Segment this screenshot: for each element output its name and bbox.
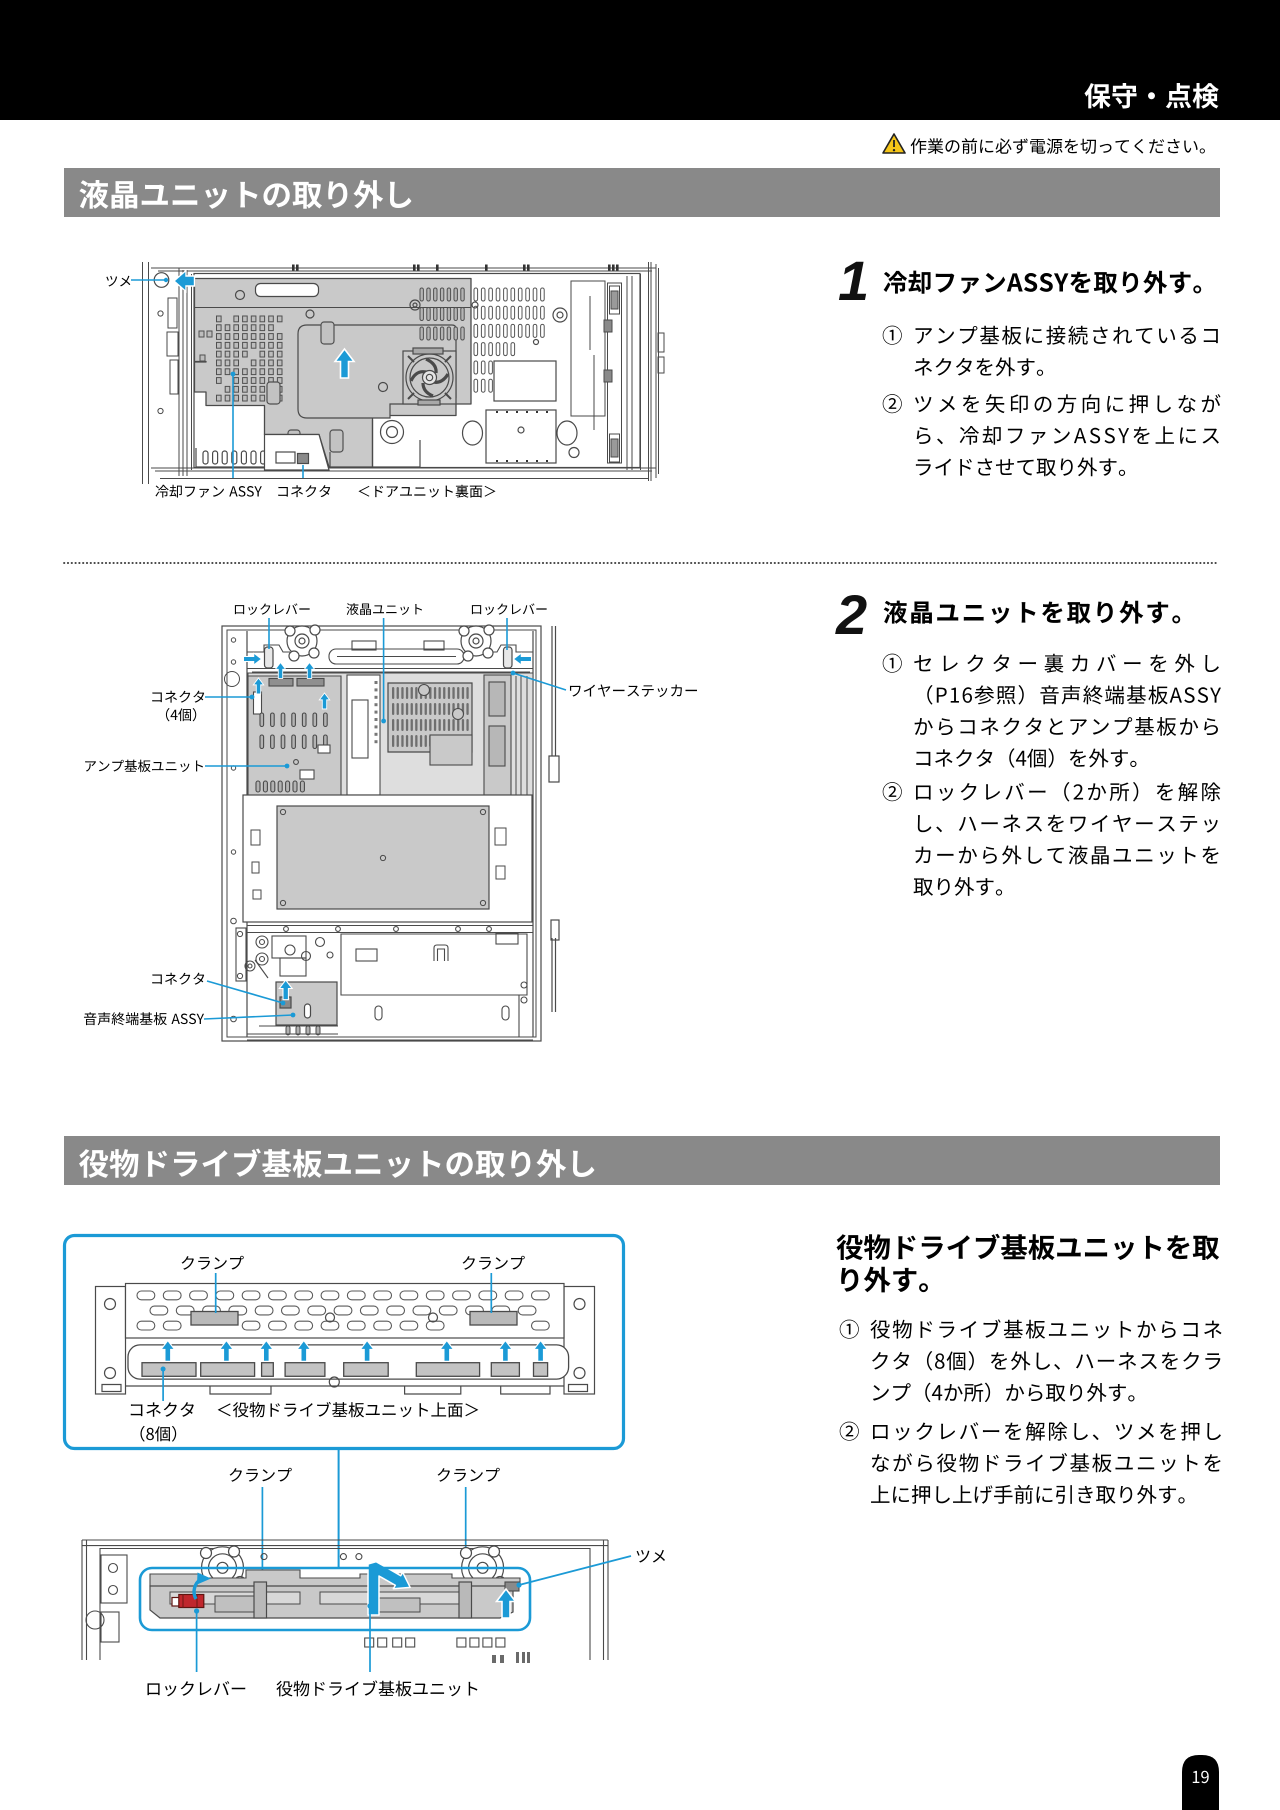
svg-text:2: 2 (835, 583, 867, 646)
svg-text:1: 1 (838, 249, 869, 312)
